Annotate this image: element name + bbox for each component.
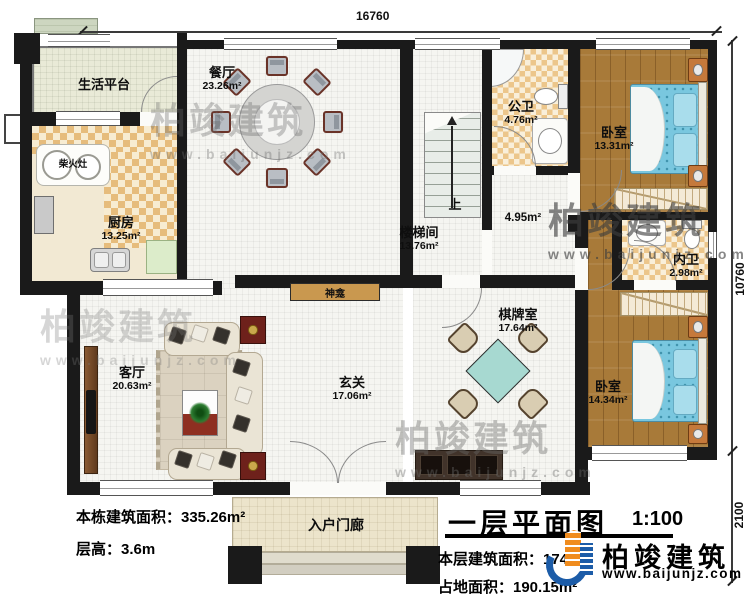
room-label-kitchen: 厨房13.25m² <box>101 216 140 242</box>
window <box>460 480 541 496</box>
porch-step <box>236 564 434 575</box>
corridor-floor <box>482 175 575 275</box>
dimension-right-lower: 2100 <box>732 498 746 532</box>
stat-building-area: 本栋建筑面积：335.26m² <box>76 506 245 527</box>
dining-chair <box>266 56 288 76</box>
window <box>708 232 717 258</box>
stairs-direction-line <box>451 126 453 208</box>
nightstand <box>688 165 708 187</box>
plan-scale: 1:100 <box>632 508 683 531</box>
kitchen-sink <box>90 248 130 272</box>
tv <box>86 390 96 434</box>
logo-tower-orange <box>565 530 581 566</box>
bed-sheet <box>633 343 665 419</box>
wall-segment <box>568 212 708 220</box>
stairs-arrow-icon <box>447 116 457 125</box>
bed-sheet <box>631 87 665 171</box>
room-label-bedroom-top: 卧室13.31m² <box>594 126 633 152</box>
headboard <box>698 82 707 176</box>
wall-segment <box>177 33 187 287</box>
window <box>596 38 690 50</box>
door-opening <box>575 248 588 290</box>
door-opening <box>482 230 492 275</box>
door-opening <box>568 173 580 215</box>
stairs-up-label: 上 <box>448 198 461 213</box>
bed <box>630 84 700 174</box>
window <box>103 279 213 296</box>
wall-segment <box>20 33 32 295</box>
floor-plan: 神龛 生活平台 餐厅23.26m² 柴火灶 厨房13.25m² 公卫4.76m²… <box>0 0 750 598</box>
toilet-bowl <box>684 229 700 249</box>
room-label-bath-private: 内卫2.98m² <box>669 253 702 279</box>
dining-table <box>239 84 315 160</box>
shrine: 神龛 <box>290 283 380 301</box>
dining-chair <box>266 168 288 188</box>
window <box>592 445 687 461</box>
plant <box>189 402 211 424</box>
room-label-bedroom-bottom: 卧室14.34m² <box>588 380 627 406</box>
pillow <box>673 349 697 379</box>
nightstand <box>688 424 708 444</box>
room-label-stairwell: 楼梯间13.76m² <box>399 226 438 252</box>
sink <box>538 128 562 154</box>
tv-cabinet <box>415 450 503 480</box>
room-label-porch: 入户门廊 <box>308 518 364 534</box>
window <box>224 38 337 50</box>
pillow <box>673 133 697 167</box>
kitchen-cabinet <box>146 240 177 274</box>
gas-stove <box>34 196 54 234</box>
corridor-area-label: 4.95m² <box>505 212 541 225</box>
room-label-living: 客厅20.63m² <box>112 366 151 392</box>
door-opening <box>442 275 480 288</box>
bed <box>632 340 700 422</box>
dining-chair <box>211 111 231 133</box>
wall-segment <box>235 275 575 288</box>
wardrobe <box>614 188 708 210</box>
pillow <box>673 93 697 127</box>
door-opening <box>140 112 177 126</box>
pillow <box>673 385 697 415</box>
dining-chair <box>323 111 343 133</box>
side-table <box>240 316 266 344</box>
side-table <box>240 452 266 480</box>
headboard <box>698 338 707 424</box>
sink <box>636 224 658 242</box>
toilet <box>682 220 702 229</box>
room-label-chess: 棋牌室17.64m² <box>498 308 537 334</box>
room-label-bath-public: 公卫4.76m² <box>504 100 537 126</box>
wall-pillar <box>14 33 40 64</box>
wall-segment <box>67 281 80 495</box>
stat-floor-height: 层高：3.6m <box>76 538 155 559</box>
toilet <box>558 84 568 109</box>
wardrobe <box>620 292 708 316</box>
entry-door-opening <box>290 482 386 495</box>
window <box>415 38 500 50</box>
dimension-line <box>731 40 733 452</box>
shrine-label: 神龛 <box>325 285 345 300</box>
room-label-dining: 餐厅23.26m² <box>202 66 241 92</box>
nightstand <box>688 58 708 82</box>
logo-tower-blue <box>580 543 593 575</box>
dimension-right-upper: 10760 <box>733 257 747 301</box>
door-opening <box>494 166 536 175</box>
window <box>100 480 213 496</box>
dimension-top: 16760 <box>356 9 389 23</box>
wall-segment <box>575 447 588 495</box>
nightstand <box>688 316 708 338</box>
window <box>56 111 120 126</box>
door-opening <box>634 280 676 290</box>
porch-step <box>236 552 434 564</box>
porch-pillar <box>228 546 262 584</box>
window <box>48 34 110 47</box>
room-label-foyer: 玄关17.06m² <box>332 376 371 402</box>
brand-logo-icon <box>552 528 600 594</box>
room-label-platform: 生活平台 <box>78 78 130 93</box>
brand-url: www.baijunjz.com <box>602 566 743 581</box>
room-label-stove: 柴火灶 <box>59 160 88 171</box>
porch-pillar <box>406 546 440 584</box>
